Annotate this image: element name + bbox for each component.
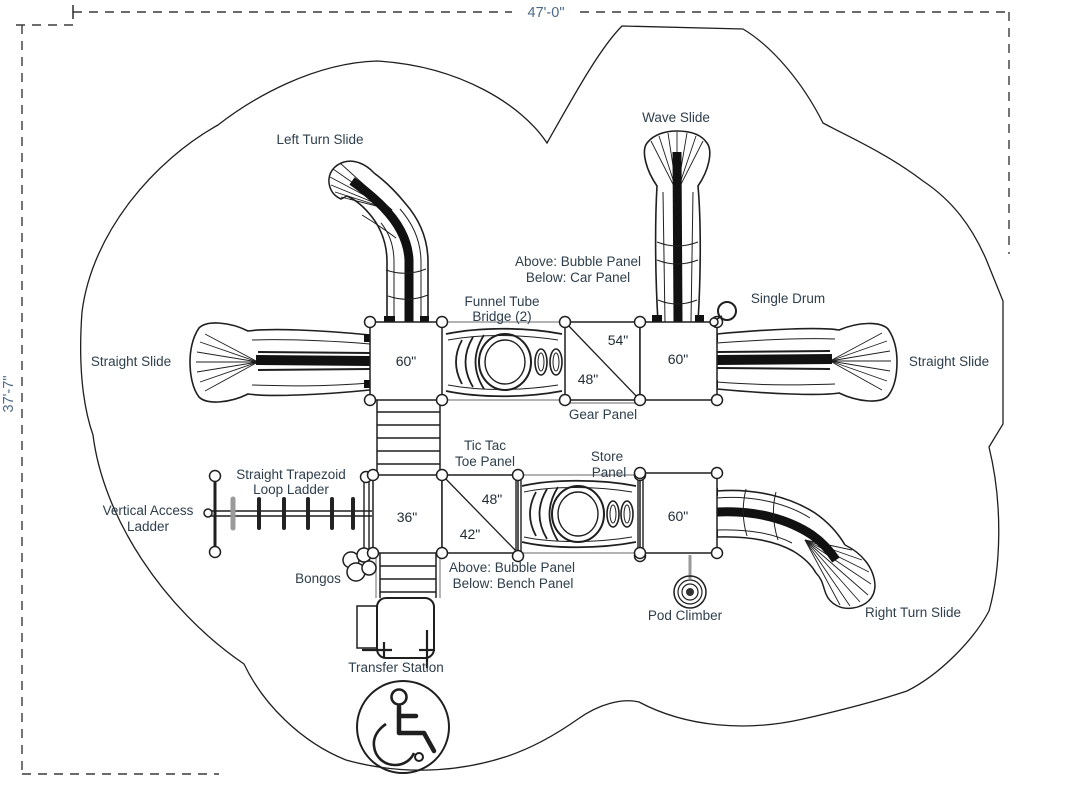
deck-48-upper-height: 48": [578, 371, 599, 387]
stairs-upper: [377, 400, 440, 475]
tic-tac-toe-label-line1: Tic Tac: [464, 438, 506, 453]
playground-plan-page: 47'-0" 37'-7": [0, 0, 1071, 785]
funnel-tube-bridge-label-line1: Funnel Tube: [464, 294, 539, 309]
use-zone-boundary: [81, 26, 1003, 770]
width-dimension-label: 47'-0": [528, 5, 565, 21]
store-panel-label-line1: Store: [591, 449, 623, 464]
funnel-tube-bridge-label-line2: Bridge (2): [472, 309, 531, 324]
straight-slide-right-label: Straight Slide: [909, 354, 989, 369]
straight-slide-right-graphic: [710, 323, 897, 401]
bubble-bench-panel-label-line1: Above: Bubble Panel: [449, 560, 575, 575]
deck-lower-left: 36": [373, 475, 442, 553]
right-turn-slide-label: Right Turn Slide: [865, 605, 961, 620]
straight-slide-right-fan-lines: [830, 333, 891, 390]
funnel-tube-bridge-upper: [446, 329, 562, 397]
wave-slide-graphic: [644, 131, 709, 322]
playground-plan-drawing: 47'-0" 37'-7": [0, 0, 1071, 785]
right-turn-slide-graphic: [711, 488, 875, 608]
vertical-access-ladder-label-line1: Vertical Access: [103, 503, 194, 518]
funnel-tube-bridge-lower: [522, 481, 636, 548]
left-turn-slide-label: Left Turn Slide: [276, 132, 363, 147]
wheelchair-accessible-icon: [357, 681, 449, 773]
transfer-station-label: Transfer Station: [348, 660, 444, 675]
tic-tac-toe-label-line2: Toe Panel: [455, 454, 515, 469]
right-turn-slide-fan-lines: [805, 540, 871, 606]
bubble-bench-panel-label-line2: Below: Bench Panel: [453, 576, 574, 591]
deck-upper-left-height: 60": [396, 353, 417, 369]
deck-42-height: 42": [460, 526, 481, 542]
deck-48-lower-height: 48": [482, 491, 503, 507]
trapezoid-loop-ladder-label-line1: Straight Trapezoid: [236, 467, 346, 482]
deck-upper-right: 60": [640, 322, 717, 400]
deck-lower-middle-diagonal: 48" 42": [442, 475, 518, 553]
deck-lower-right: 60": [640, 473, 717, 553]
height-dimension-label: 37'-7": [1, 376, 17, 413]
straight-slide-left-label: Straight Slide: [91, 354, 171, 369]
pod-climber-label: Pod Climber: [648, 608, 723, 623]
trapezoid-loop-ladder-label-line2: Loop Ladder: [253, 482, 329, 497]
bubble-car-panel-label-line2: Below: Car Panel: [526, 270, 630, 285]
deck-54-height: 54": [608, 332, 629, 348]
deck-lower-right-height: 60": [668, 508, 689, 524]
deck-36-height: 36": [397, 509, 418, 525]
pod-climber-graphic: [674, 555, 706, 608]
straight-slide-left-fan-lines: [196, 334, 258, 391]
straight-slide-left-graphic: [190, 323, 372, 402]
deck-upper-right-height: 60": [668, 351, 689, 367]
single-drum-label: Single Drum: [751, 291, 825, 306]
deck-upper-left: 60": [370, 322, 442, 400]
vertical-access-ladder-label-line2: Ladder: [127, 519, 170, 534]
bongos-label: Bongos: [295, 571, 341, 586]
store-panel-label-line2: Panel: [592, 465, 627, 480]
left-turn-slide-graphic: [329, 161, 429, 323]
deck-upper-middle-diagonal: 54" 48": [565, 322, 640, 400]
bubble-car-panel-label-line1: Above: Bubble Panel: [515, 254, 641, 269]
wave-slide-label: Wave Slide: [642, 110, 710, 125]
gear-panel-label: Gear Panel: [569, 407, 637, 422]
